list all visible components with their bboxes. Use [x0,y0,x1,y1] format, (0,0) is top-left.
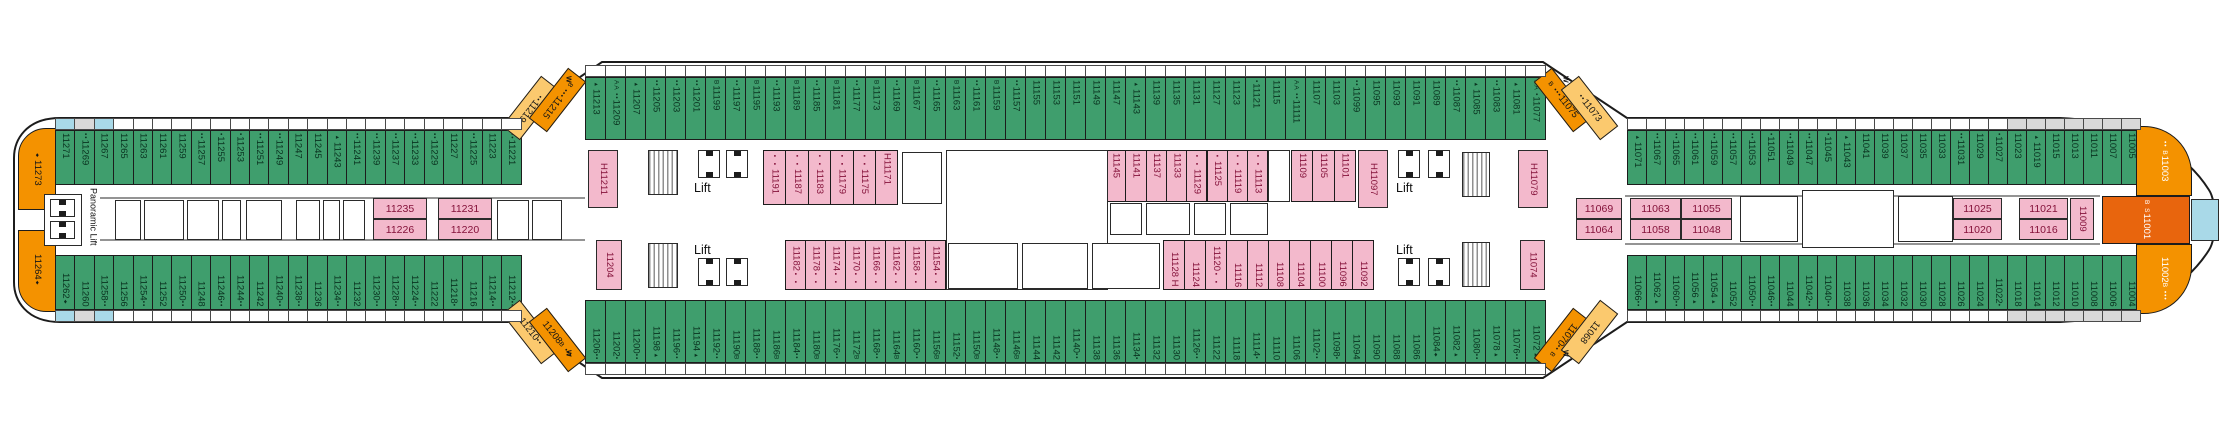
cabin-11060: 11060•• [1665,255,1685,310]
balcony-strip-cell [1722,310,1742,322]
cabin-pair-11063-11058: 1106311058 [1630,198,1681,240]
balcony-strip-cell [1405,65,1426,77]
cabin-11087: ••11087 [1445,77,1466,140]
berth-marker-icon: • [952,357,959,360]
cabin-11152: 11152• [945,300,966,363]
cabin-number: 11186 [770,330,781,355]
balcony-strip-cell [1425,363,1446,375]
cabin-11155: 11155 [1025,77,1046,140]
balcony-strip-cell [625,363,646,375]
balcony-strip-cell [1684,118,1704,130]
cabin-number: 11241 [351,140,362,166]
room-box [144,200,184,240]
cabin-11189: B11189 [785,77,806,140]
balcony-strip-cell [1760,118,1780,130]
berth-marker-icon: AA •• [1292,80,1299,100]
balcony-strip-cell [1205,363,1226,375]
cabin-number: 11098 [1330,331,1341,357]
cabin-11203: ••11203 [665,77,686,140]
cabin-11124: 11124 [1184,240,1206,290]
room-box [115,200,141,240]
cabin-11107: 11107 [1305,77,1326,140]
balcony-strip-cell [965,363,986,375]
cabin-number: 11044 [1784,281,1795,307]
berth-marker-icon: •• [1767,300,1774,307]
balcony-strip-cell [482,310,502,322]
cabin-pair-11025-11020: 1102511020 [1953,198,2002,240]
cabin-11102: 11102•• [1305,300,1326,363]
cabin-number: 11173 [870,85,881,110]
cabin-11022: 11022• [1988,255,2008,310]
cabin-number: 11071 [1632,142,1643,168]
cabin-11028: 11028 [1931,255,1951,310]
balcony-strip-cell [745,363,766,375]
cabin-number: 11183 [814,169,825,194]
cabin-11241: ••11241 [346,130,366,185]
balcony-strip-cell [845,363,866,375]
cabin-11032: 11032 [1893,255,1913,310]
lift-label: Lift [694,243,734,257]
berth-marker-icon: •• [1072,353,1079,360]
balcony-strip-cell [1065,363,1086,375]
cabin-number: 11029 [1974,133,1985,159]
cabin-11095: 11095 [1365,77,1386,140]
cabin-11190: 11190B [725,300,746,363]
berth-marker-icon: ▸ [592,80,599,89]
cabin-number: 11094 [1350,334,1361,360]
berth-marker-icon: •• [1805,300,1812,307]
berth-marker-icon: ▸ [1634,133,1641,142]
cabin-11159: B11159 [985,77,1006,140]
cabin-number: 11175 [859,169,870,194]
cabin-number: 11265 [118,133,129,159]
cabin-pair-11235-11226: 1123511226 [373,198,427,240]
berth-marker-icon: AA •• [612,80,619,100]
cabin-11098: 11098• [1325,300,1346,363]
berth-marker-icon: •• [489,300,496,307]
balcony-strip-cell [2007,310,2027,322]
berth-marker-icon: ♦ [34,152,41,160]
cabin-number: 11001 [2141,214,2152,240]
balcony-strip-cell [404,118,424,130]
cabin-number: 11040 [1822,275,1833,301]
cabin-11261: 11261 [152,130,172,185]
cabin-11232: 11232 [346,255,366,310]
cabin-number: 11045 [1822,136,1833,162]
cabin-number: 11103 [1330,80,1341,105]
balcony-strip-cell [1145,65,1166,77]
cabin-number: 11080 [1470,328,1481,354]
cabin-11183: ▪▪11183 [808,150,831,205]
balcony-strip-cell [2026,310,2046,322]
cabin-11147: 11147 [1105,77,1126,140]
cabin-number: 11194 [690,326,701,351]
cabin-number: 11122 [1210,335,1221,360]
cabin-number: 11155 [1030,80,1041,105]
berth-marker-icon: • [1132,357,1139,360]
cabin-number: 11105 [1318,153,1329,178]
balcony-strip-cell [1836,118,1856,130]
stairs-icon [648,150,678,195]
cabin-11225: ••11225 [462,130,482,185]
balcony-strip-cell [385,118,405,130]
cabin-11031: ••11031 [1950,130,1970,185]
room-box [1268,150,1290,202]
cabin-number: 11232 [351,281,362,307]
balcony-strip-cell [1817,118,1837,130]
balcony-strip-cell [745,65,766,77]
berth-marker-icon: ▸ [334,133,341,142]
cabin-number: 11179 [837,169,848,194]
cabin-number: 11154 [930,246,941,271]
cabin-11144: 11144 [1025,300,1046,363]
cabin-11157: ••11157 [1005,77,1026,140]
berth-marker-icon: •• [672,353,679,360]
cabin-11181: B11181 [825,77,846,140]
balcony-strip-cell [1465,65,1486,77]
cabin-number: 11234 [332,275,343,301]
cabin-number: 11118 [1230,336,1241,360]
cabin-11064: 11064 [1576,219,1622,240]
cabin-11041: 11041 [1855,130,1875,185]
cabin-11177: ••11177 [845,77,866,140]
cabin-number: 11151 [1070,80,1081,105]
balcony-strip-cell [1285,65,1306,77]
cabin-11153: 11153 [1045,77,1066,140]
cabin-11018: 11018 [2007,255,2027,310]
balcony-strip-cell [327,310,347,322]
cabin-number: 11137 [1151,153,1162,178]
cabin-11170: 11170▪▪ [845,240,866,290]
cabin-number: 11212 [506,275,517,301]
cabin-11156: 11156B [925,300,946,363]
cabin-11143: ▸11143 [1125,77,1146,140]
cabin-number: 11213 [590,89,601,115]
berth-marker-icon: ▸ [692,351,699,360]
cabin-11247: 11247 [288,130,308,185]
cabin-number: 11109 [1297,153,1308,178]
cabin-number: 11008 [2088,281,2099,307]
berth-marker-icon: •• [712,353,719,360]
balcony-strip-cell [1779,118,1799,130]
cabin-11128H: 11128 H [1163,240,1185,290]
room-box [1898,196,1953,242]
cabin-11142: 11142 [1045,300,1066,363]
berth-marker-icon: B [852,355,859,360]
cabin-11021: 11021 [2019,198,2068,219]
cabin-number: 11056 [1689,272,1700,298]
balcony-strip-cell [1505,65,1526,77]
cabin-number: 11247 [293,133,304,159]
lift-icon [726,258,748,286]
balcony-strip-cell [1505,363,1526,375]
cabin-11045: •11045 [1817,130,1837,185]
berth-marker-icon: ▪▪ [872,271,879,287]
cabin-number: 11054 [1708,272,1719,298]
cabin-number: 11273 [32,160,43,186]
berth-marker-icon: ♦ [34,280,41,288]
berth-marker-icon: ▪▪ [1194,153,1201,169]
cabin-number: 11066 [1632,275,1643,301]
balcony-strip-cell [482,118,502,130]
cabin-11043: ▸11043 [1836,130,1856,185]
cabin-11267: 11267 [94,130,114,185]
cabin-number: 11100 [1316,262,1327,287]
cabin-11101: 11101 [1334,150,1356,202]
cabin-number: H11171 [881,153,892,185]
room-box [1802,190,1894,248]
cabin-number: 11147 [1110,80,1121,105]
balcony-strip-cell [1405,363,1426,375]
cabin-number: 11145 [1110,153,1121,178]
cabin-number: 11159 [990,85,1001,110]
cabin-number: 11246 [215,275,226,301]
balcony-strip-cell [1105,363,1126,375]
cabin-number: 11141 [1131,153,1142,178]
balcony-strip-cell [1665,118,1685,130]
berth-marker-icon: •• [792,353,799,360]
berth-marker-icon: ▸ [1512,80,1519,89]
cabin-11078: 11078▸ [1485,300,1506,363]
cabin-11148: 11148•• [985,300,1006,363]
balcony-strip-cell [249,118,269,130]
berth-marker-icon: •• [912,353,919,360]
cabin-11129: ▪▪11129 [1186,150,1207,202]
balcony-strip-cell [1385,65,1406,77]
cabin-11194: 11194▸ [685,300,706,363]
cabin-11229: ••11229 [424,130,444,185]
balcony-strip-cell [133,310,153,322]
cabin-number: 11129 [1192,169,1203,194]
cabin-number: 11065 [1670,140,1681,166]
cabin-number: 11125 [1212,161,1223,186]
balcony-strip-cell [288,118,308,130]
cabin-11092: 11092 [1352,240,1374,290]
cabin-11150: 11150B [965,300,986,363]
cabin-11116: 11116 [1226,240,1248,290]
cabin-11146: 11146B [1005,300,1026,363]
cabin-11237: ••11237 [385,130,405,185]
cabin-11040: 11040•• [1817,255,1837,310]
cabin-11191: ▪▪11191 [763,150,786,205]
berth-marker-icon: ▸ [1472,80,1479,89]
berth-marker-icon: •• [592,353,599,360]
cabin-11039: 11039 [1874,130,1894,185]
berth-marker-icon: •• [217,300,224,307]
balcony-strip-cell [2083,118,2103,130]
balcony-strip-cell [785,363,806,375]
berth-marker-icon: ▸ [1452,351,1459,360]
cabin-number: 11027 [1993,136,2004,162]
cabin-number: 11081 [1510,89,1521,115]
room-box [246,200,282,240]
cabin-11193: ••11193 [765,77,786,140]
balcony-strip-cell [585,363,606,375]
cabin-11071: ▸11071 [1627,130,1647,185]
balcony-strip-cell [985,65,1006,77]
balcony-strip-cell [1205,65,1226,77]
cabin-number: 11251 [254,140,265,166]
balcony-strip-cell [268,310,288,322]
balcony-strip-cell [94,118,114,130]
cabin-number: 11111 [1290,100,1301,124]
cabin-11235: 11235 [373,198,427,219]
cabin-11082: 11082▸ [1445,300,1466,363]
cabin-11051: •11051 [1760,130,1780,185]
cabin-number: 11104 [1295,262,1306,287]
cabin-number: 11172 [850,330,861,355]
cabin-11204: 11204 [596,240,622,290]
cabin-number: 11112 [1253,263,1264,287]
cabin-number: 11245 [312,133,323,159]
cabin-11222: 11222 [424,255,444,310]
cabin-number: 11200 [630,328,641,354]
balcony-strip-cell [1265,363,1286,375]
cabin-11249: ••11249 [268,130,288,185]
cabin-11214: 11214•• [482,255,502,310]
deck-plan: 11271••112691126711265112631126111259••1… [0,0,2232,440]
berth-marker-icon: ▸ [1653,298,1660,307]
balcony-strip-cell [865,363,886,375]
cabin-number: 11225 [467,140,478,166]
cabin-number: 11250 [176,275,187,301]
cabin-11125: ▪11125 [1207,150,1228,202]
balcony-strip-cell [365,310,385,322]
balcony-strip-cell [1345,65,1366,77]
cabin-H11079: H11079 [1518,150,1548,208]
cabin-11100: 11100 [1310,240,1332,290]
balcony-strip-cell [1485,363,1506,375]
balcony-strip-cell [1969,310,1989,322]
cabin-number: 11124 [1190,262,1201,287]
wing-marker: W [1560,350,1570,364]
cabin-11243: ▸11243 [327,130,347,185]
cabin-number: 11253 [235,136,246,162]
cabin-11255: •11255 [210,130,230,185]
cabin-11257: ••11257 [191,130,211,185]
cabin-number: 11269 [79,140,90,166]
cabin-number: 11003 [2159,155,2170,181]
balcony-strip-cell [1931,310,1951,322]
cabin-11113: ▪▪11113 [1247,150,1268,202]
cabin-11042: 11042•• [1798,255,1818,310]
balcony-strip-cell [765,363,786,375]
cabin-number: 11087 [1450,87,1461,113]
cabin-11202: 11202• [605,300,626,363]
balcony-strip-cell [230,310,250,322]
berth-marker-icon: •• [1512,353,1519,360]
balcony-strip-cell [288,310,308,322]
cabin-11186: 11186B [765,300,786,363]
cabin-11010: 11010 [2064,255,2084,310]
cabin-11259: 11259 [171,130,191,185]
cabin-number: 11127 [1210,80,1221,105]
cabin-number: 11062 [1651,272,1662,298]
cabin-11001: B S11001 [2102,196,2190,244]
balcony-strip-cell [1817,310,1837,322]
cabin-11047: ••11047 [1798,130,1818,185]
balcony-strip-cell [1065,65,1086,77]
cabin-number: 11134 [1130,332,1141,357]
balcony-strip-cell [55,118,75,130]
cabin-11009: 11009 [2070,198,2094,240]
cabin-number: 11057 [1727,140,1738,166]
cabin-number: 11019 [2031,142,2042,168]
cabin-number: 11142 [1050,335,1061,360]
balcony-strip-cell [1988,118,2008,130]
cabin-11110: 11110 [1265,300,1286,363]
balcony-strip-cell [2102,118,2122,130]
cabin-number: 11072 [1530,325,1541,351]
cabin-11084: 11084♦ [1425,300,1446,363]
balcony-strip-cell [1988,310,2008,322]
cabin-11034: 11034 [1874,255,1894,310]
cabin-11166: 11166▪▪ [865,240,886,290]
balcony-strip-cell [1836,310,1856,322]
cabin-11026: 11026 [1950,255,1970,310]
cabin-number: 11166 [870,246,881,271]
cabin-11233: ••11233 [404,130,424,185]
room-box [497,200,529,240]
cabin-number: 11224 [409,275,420,301]
balcony-strip-cell [404,310,424,322]
balcony-strip-cell [191,310,211,322]
cabin-11105: 11105 [1312,150,1334,202]
cabin-number: 11174 [830,246,841,271]
cabin-11120: 11120▪▪ [1205,240,1227,290]
cabin-11030: 11030 [1912,255,1932,310]
cabin-11151: 11151 [1065,77,1086,140]
cabin-11248: 11248 [191,255,211,310]
cabin-11162: 11162▪▪ [885,240,906,290]
cabin-11080: 11080•• [1465,300,1486,363]
balcony-strip-cell [1912,310,1932,322]
cabin-number: 11188 [750,328,761,353]
wing-marker: W [1560,76,1570,90]
balcony-strip-cell [1005,363,1026,375]
cabin-11112: 11112 [1247,240,1269,290]
balcony-strip-cell [925,363,946,375]
cabin-11136: 11136 [1105,300,1126,363]
berth-marker-icon: •• [872,353,879,360]
berth-marker-icon: •• [1824,300,1831,307]
cabin-number: 11165 [930,87,941,112]
berth-marker-icon: • [1332,357,1339,360]
balcony-strip-cell [2102,310,2122,322]
berth-marker-icon: ▪▪ [932,271,939,287]
cabin-number: 11158 [910,246,921,271]
cabin-11007: 11007 [2102,130,2122,185]
cabin-number: 11193 [770,87,781,112]
balcony-strip-cell [1045,363,1066,375]
balcony-strip-cell [1950,310,1970,322]
cabin-number: 11187 [792,169,803,194]
balcony-strip-cell [945,363,966,375]
cabin-number: 11067 [1651,140,1662,166]
cabin-11172: 11172B [845,300,866,363]
balcony-strip-cell [1365,65,1386,77]
cabin-11230: 11230•• [365,255,385,310]
cabin-11244: 11244•• [230,255,250,310]
cabin-11231: 11231 [438,198,492,219]
balcony-strip-cell [1931,118,1951,130]
balcony-strip-cell [1085,363,1106,375]
cabin-11141: 11141 [1125,150,1146,202]
cabin-number: 11240 [273,275,284,301]
cabin-11063: 11063 [1630,198,1681,219]
balcony-strip-cell [443,118,463,130]
cabin-11033: 11033 [1931,130,1951,185]
